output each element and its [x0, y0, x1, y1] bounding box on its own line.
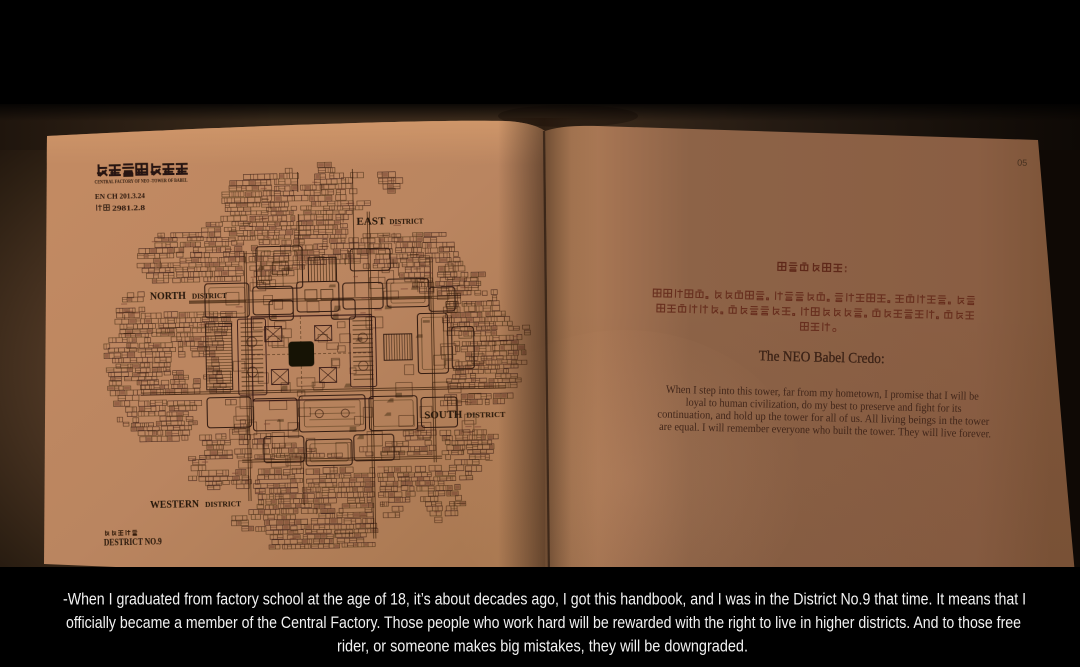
svg-text:NORTH: NORTH	[150, 291, 186, 303]
svg-text:05: 05	[1017, 158, 1027, 168]
svg-text:The NEO Babel Credo:: The NEO Babel Credo:	[759, 348, 885, 367]
svg-text:DESTRICT NO.9: DESTRICT NO.9	[104, 536, 163, 547]
svg-text:SOUTH: SOUTH	[424, 410, 462, 422]
svg-text:DISTRICT: DISTRICT	[205, 499, 241, 509]
svg-text:-When I graduated from factory: -When I graduated from factory school at…	[63, 591, 1026, 609]
svg-text:officially became a member of: officially became a member of the Centra…	[66, 614, 1021, 632]
svg-text:DISTRICT: DISTRICT	[389, 216, 423, 226]
svg-text:DISTRICT: DISTRICT	[192, 291, 227, 301]
svg-text:EAST: EAST	[356, 216, 386, 228]
svg-text:2981.2.8: 2981.2.8	[112, 204, 146, 213]
svg-text:DISTRICT: DISTRICT	[466, 410, 505, 420]
svg-text:EN CH 201.3.24: EN CH 201.3.24	[95, 192, 146, 201]
svg-text:rider, or someone makes big mi: rider, or someone makes big mistakes, th…	[337, 638, 748, 656]
svg-text:WESTERN: WESTERN	[150, 499, 200, 511]
